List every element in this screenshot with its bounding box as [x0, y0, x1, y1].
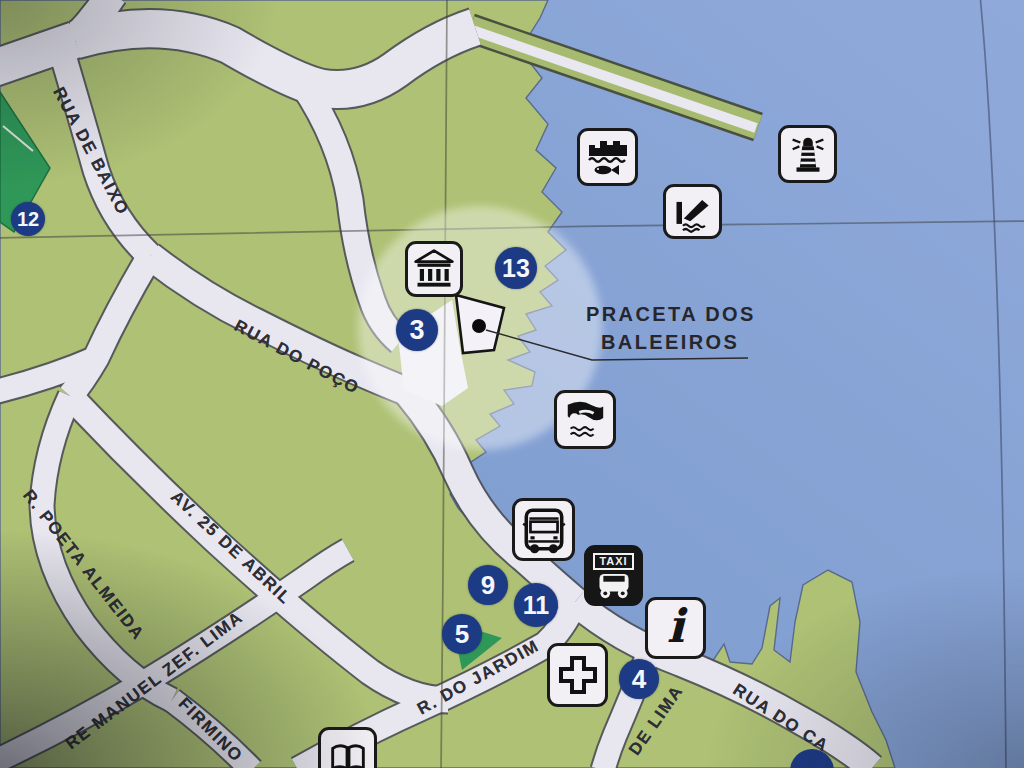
first-aid-cross-icon [547, 643, 608, 707]
book-icon [318, 727, 377, 768]
swimming-icon [554, 390, 616, 449]
place-label-praceta-dos-baleeiros: PRACETA DOS BALEEIROS [586, 300, 756, 356]
info-glyph: i [667, 603, 684, 649]
marker-13: 13 [495, 247, 537, 289]
boat-ramp-icon [663, 184, 722, 239]
marker-3: 3 [396, 309, 438, 351]
praceta-dot [472, 319, 486, 333]
bus-icon [512, 498, 575, 561]
marker-12: 12 [11, 202, 45, 236]
marker-4: 4 [619, 659, 659, 699]
marker-11: 11 [514, 583, 558, 627]
info-icon: i [645, 597, 706, 659]
fort-and-fish-icon [577, 128, 638, 186]
museum-icon [405, 241, 463, 297]
taxi-sign-label: TAXI [593, 553, 633, 570]
place-label-line2: BALEEIROS [586, 328, 756, 356]
map-photo: RUA DE BAIXO RUA DO POÇO AV. 25 DE ABRIL… [0, 0, 1024, 768]
marker-5: 5 [442, 614, 482, 654]
taxi-icon: TAXI [584, 545, 643, 606]
map-inner: RUA DE BAIXO RUA DO POÇO AV. 25 DE ABRIL… [0, 0, 1024, 768]
marker-9: 9 [468, 565, 508, 605]
lighthouse-icon [778, 125, 837, 183]
place-label-line1: PRACETA DOS [586, 300, 756, 328]
